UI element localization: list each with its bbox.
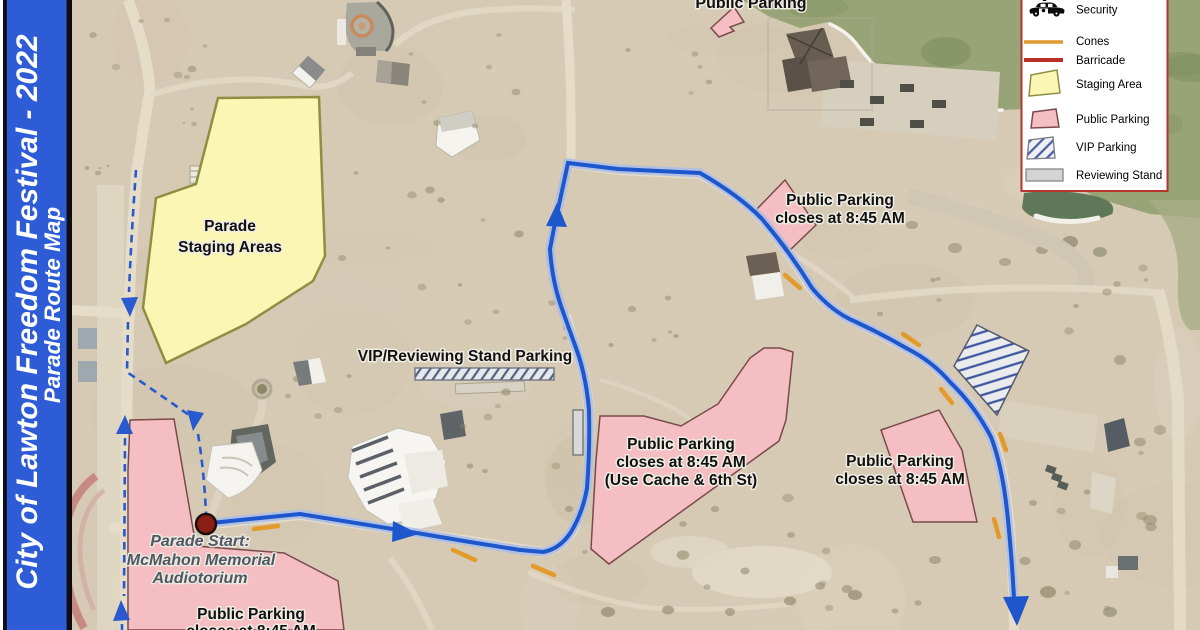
svg-text:Audiotorium: Audiotorium bbox=[151, 570, 247, 587]
svg-text:Parade: Parade bbox=[204, 218, 256, 235]
svg-text:VIP/Reviewing Stand Parking: VIP/Reviewing Stand Parking bbox=[358, 348, 572, 365]
svg-text:Parade Start:: Parade Start: bbox=[150, 533, 250, 550]
svg-text:McMahon Memorial: McMahon Memorial bbox=[127, 552, 276, 569]
svg-text:closes at 8:45 AM: closes at 8:45 AM bbox=[186, 623, 316, 630]
svg-text:closes at 8:45 AM: closes at 8:45 AM bbox=[835, 471, 965, 488]
svg-text:Public Parking: Public Parking bbox=[627, 436, 735, 453]
svg-text:Cones: Cones bbox=[1076, 36, 1109, 48]
svg-text:Barricade: Barricade bbox=[1076, 55, 1125, 67]
svg-text:Security: Security bbox=[1076, 5, 1118, 17]
svg-text:(Use Cache & 6th St): (Use Cache & 6th St) bbox=[605, 472, 757, 489]
svg-text:Parade Route Map: Parade Route Map bbox=[40, 207, 65, 404]
svg-text:closes at 8:45 AM: closes at 8:45 AM bbox=[616, 454, 746, 471]
svg-text:Public Parking: Public Parking bbox=[197, 606, 305, 623]
svg-text:Staging Area: Staging Area bbox=[1076, 79, 1142, 91]
svg-text:closes at 8:45 AM: closes at 8:45 AM bbox=[775, 210, 905, 227]
svg-text:Staging Areas: Staging Areas bbox=[178, 239, 282, 256]
svg-text:Public Parking: Public Parking bbox=[1076, 114, 1150, 126]
svg-text:VIP Parking: VIP Parking bbox=[1076, 142, 1137, 154]
svg-text:Reviewing Stand: Reviewing Stand bbox=[1076, 170, 1162, 182]
svg-text:Public Parking: Public Parking bbox=[786, 192, 894, 209]
svg-text:Public Parking: Public Parking bbox=[695, 0, 806, 12]
svg-text:Public Parking: Public Parking bbox=[846, 453, 954, 470]
